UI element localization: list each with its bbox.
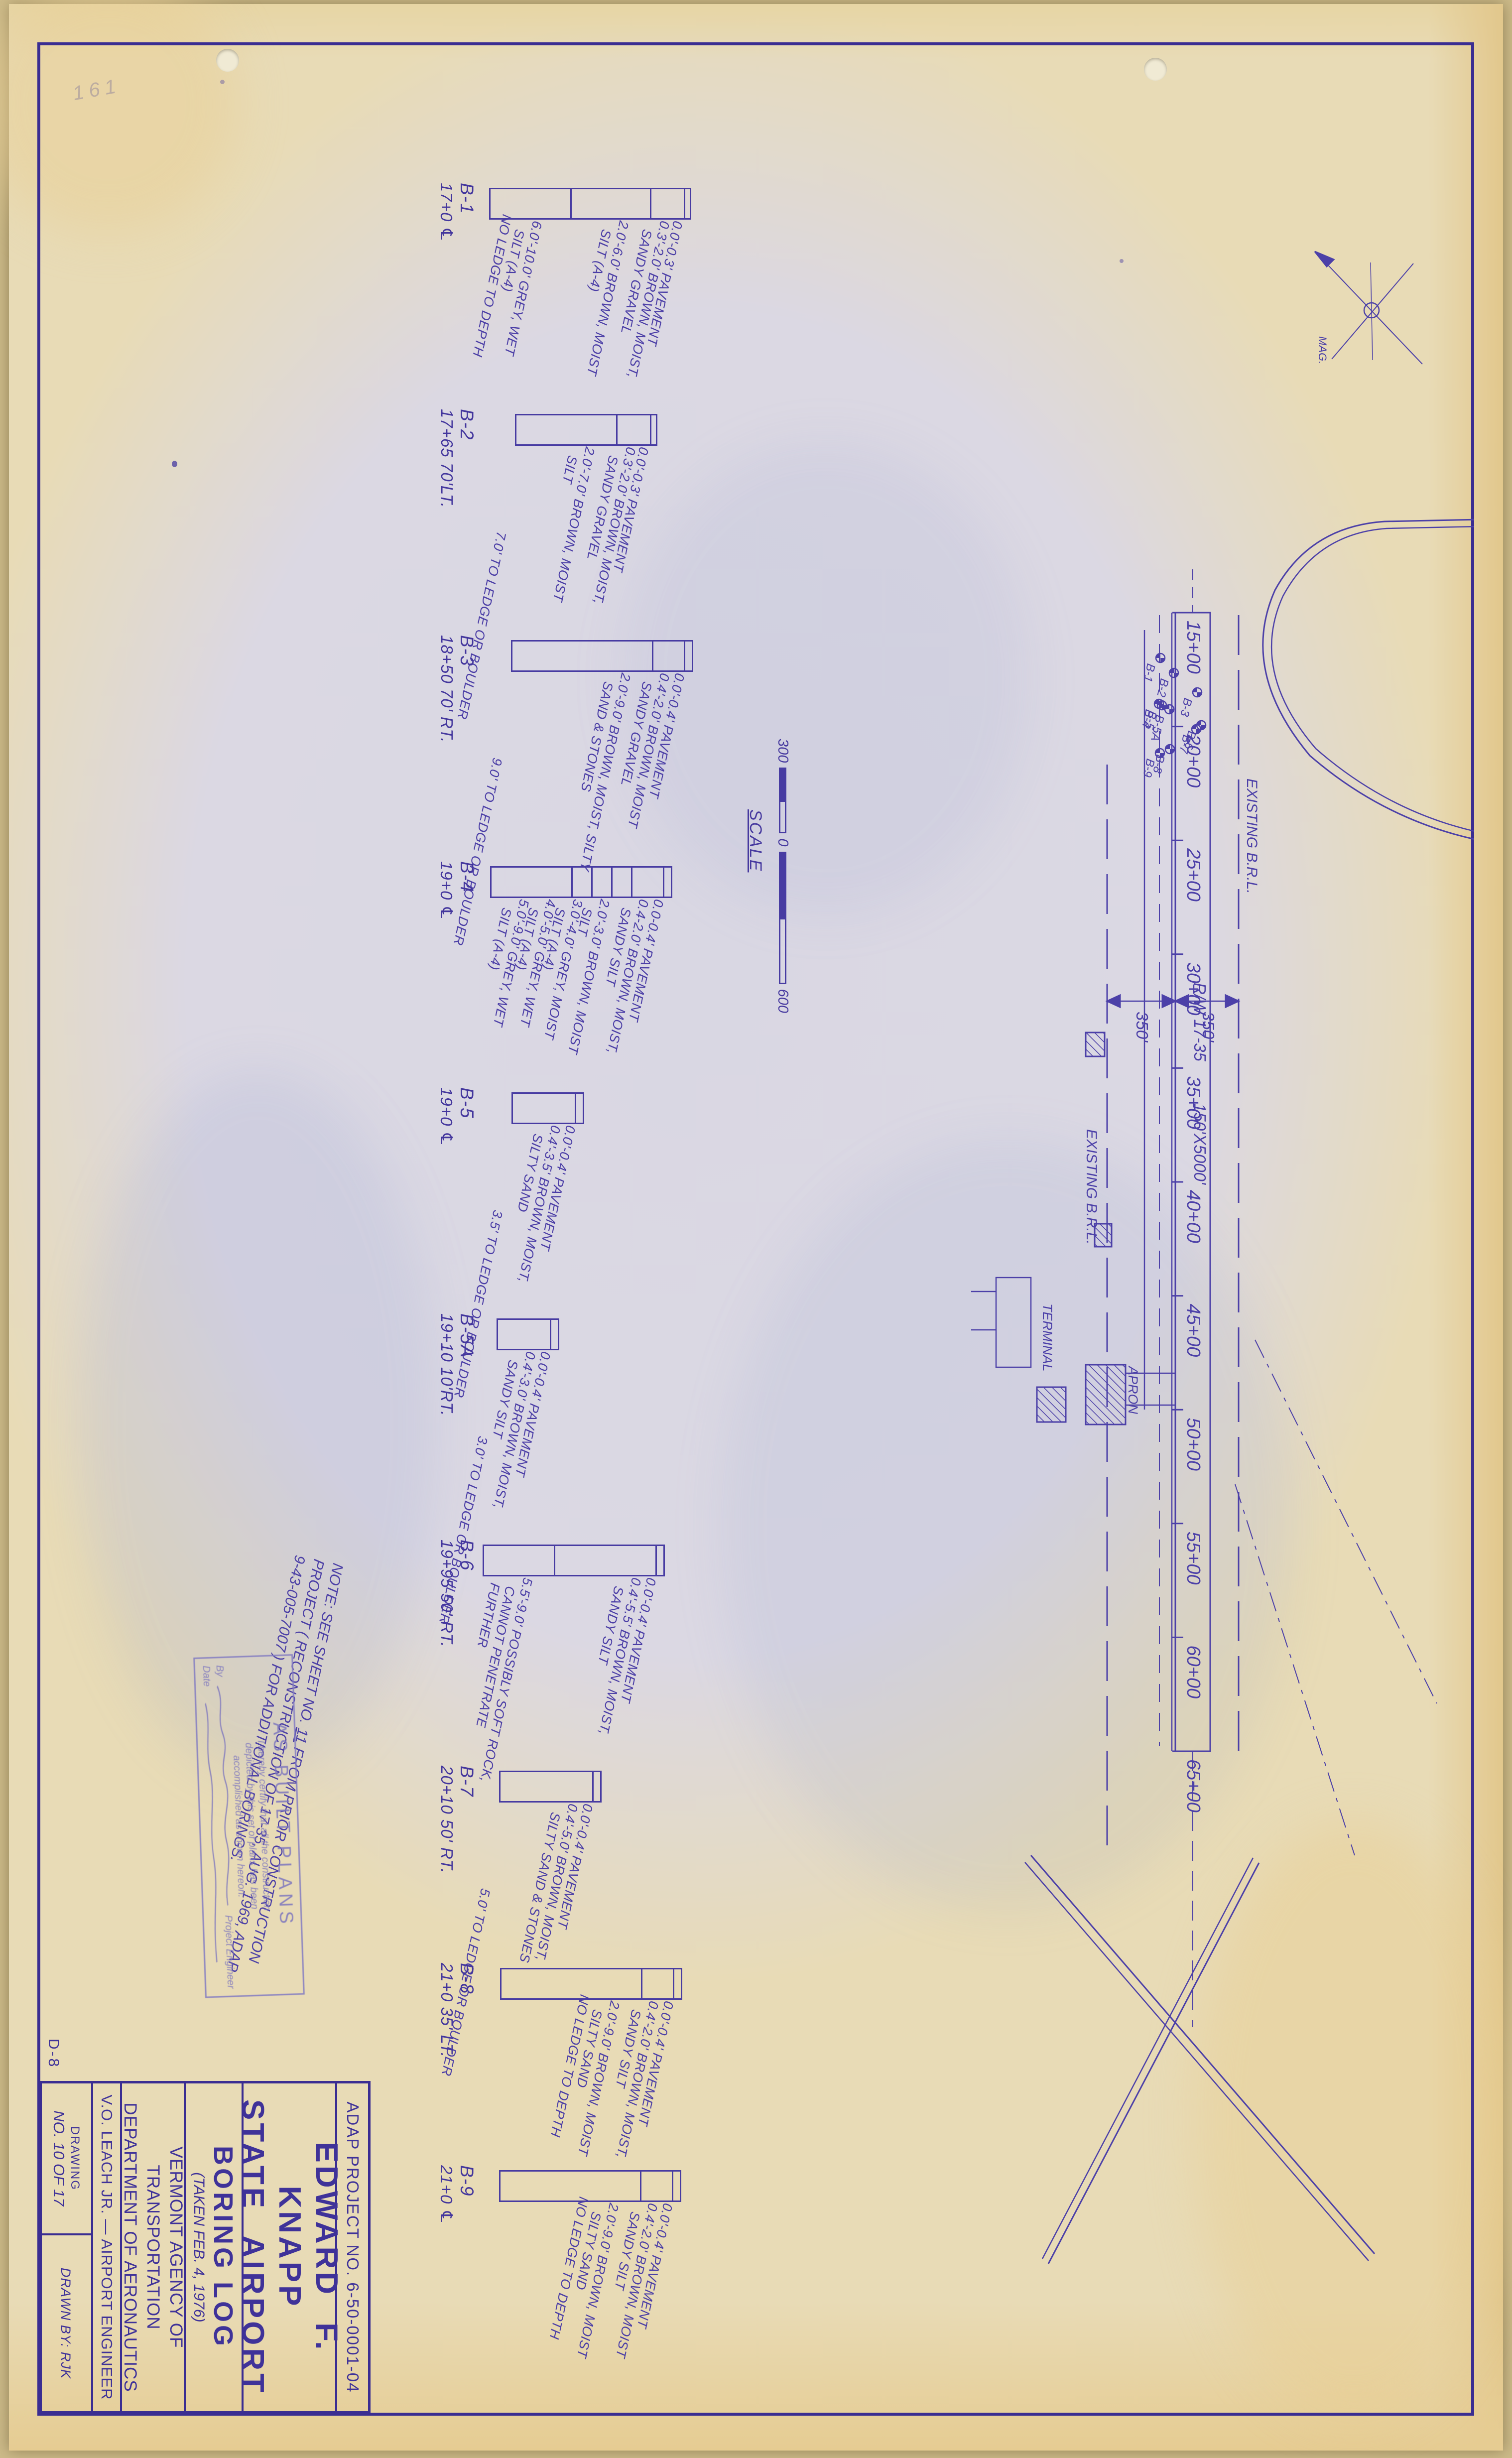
boring-marker-label: B-1: [1140, 662, 1157, 683]
scale-label: SCALE: [746, 809, 765, 873]
north-arrow-label: MAG.: [1316, 336, 1329, 364]
corner-mark: D-8: [45, 2039, 62, 2069]
airport-name-line1: EDWARD F. KNAPP: [271, 2083, 345, 2411]
scanned-blueprint-page: { "sheet_meta": { "margin_note": "161", …: [0, 0, 1512, 2458]
boring-name: B-5: [456, 1087, 477, 1147]
boring-name: B-5A: [456, 1313, 477, 1416]
station-label: 55+00: [1183, 1532, 1204, 1585]
station-label: 30+00: [1183, 962, 1204, 1016]
terminal-label: TERMINAL: [1040, 1303, 1055, 1372]
boring-name: B-8: [456, 1963, 477, 2058]
station-label: 15+00: [1183, 621, 1204, 674]
boring-station: 20+10 50' RT.: [437, 1766, 456, 1874]
boring-station: 19+0 ℄: [437, 1087, 456, 1147]
hangar-building: [1086, 1033, 1105, 1056]
stratum-boundary: [616, 415, 618, 444]
clearzone-diagonal: [1235, 1484, 1355, 1855]
drawing-word: DRAWING: [68, 2126, 82, 2191]
scale-block: [779, 768, 786, 800]
ink-dot: [172, 461, 177, 467]
scale-block: [779, 800, 786, 833]
stratum-boundary: [550, 1320, 551, 1349]
parking-area: [996, 1278, 1031, 1367]
road-35-end: [1031, 1855, 1375, 2254]
boring-label: B-419+0 ℄: [437, 861, 477, 920]
title-block-agency: VERMONT AGENCY OF TRANSPORTATION DEPARTM…: [120, 2083, 184, 2411]
stratum-boundary: [650, 189, 651, 218]
title-block: ADAP PROJECT NO. 6-50-0001-04 EDWARD F. …: [39, 2081, 371, 2414]
drawing-canvas: EXISTING B.R.L. EXISTING B.R.L. 350' 350…: [37, 42, 1474, 2416]
stratum-boundary: [641, 1969, 642, 1998]
scale-block: [779, 852, 786, 918]
boring-bar-B-4: [490, 866, 672, 898]
stamp-date-label: Date: [200, 1666, 212, 1687]
road-17-end: [1263, 519, 1474, 840]
dimension-350: [1107, 995, 1239, 1007]
scale-value-600: 600: [774, 989, 791, 1013]
stratum-boundary: [631, 868, 632, 897]
boring-name: B-9: [456, 2165, 477, 2224]
airport-name-line2: STATE AIRPORT: [234, 2099, 271, 2395]
title-block-airport-name: EDWARD F. KNAPP STATE AIRPORT: [242, 2083, 335, 2411]
stratum-boundary: [650, 415, 651, 444]
road-35-end-cross: [1042, 1858, 1253, 2259]
dimension-label-350-south: 350': [1133, 1012, 1151, 1043]
boring-label: B-519+0 ℄: [437, 1087, 477, 1147]
boring-bar-B-6: [483, 1545, 665, 1576]
road-35-end: [1025, 1862, 1369, 2261]
boring-bar-B-3: [511, 640, 693, 672]
boring-name: B-4: [456, 861, 477, 920]
boring-label: B-117+0 ℄: [437, 183, 477, 242]
ink-dot: [220, 80, 225, 84]
stratum-boundary: [684, 189, 685, 218]
existing-brl-label-north: EXISTING B.R.L.: [1244, 778, 1260, 894]
terminal-building: [1037, 1387, 1066, 1422]
stratum-boundary: [570, 189, 572, 218]
north-arrow: [1315, 252, 1422, 364]
station-ticks: 15+0020+0025+0030+0035+0040+0045+0050+00…: [1172, 613, 1204, 1812]
stratum-boundary: [640, 2172, 641, 2200]
boring-bar-B-5: [511, 1092, 584, 1124]
title-block-sheet-title: BORING LOG (TAKEN FEB. 4, 1976): [184, 2083, 242, 2411]
boring-station: 18+50 70' RT.: [437, 635, 456, 743]
scale-block: [779, 918, 786, 984]
boring-bar-B-1: [489, 188, 691, 220]
drawn-by-cell: DRAWN BY: RJK: [40, 2235, 91, 2411]
stratum-boundary: [673, 1969, 674, 1998]
boring-station: 21+0 ℄: [437, 2165, 456, 2224]
scale-value-0: 0: [774, 838, 791, 846]
boring-marker-label: B-3: [1177, 697, 1194, 718]
stamp-engineer-label: Project Engineer: [222, 1915, 236, 1989]
drawing-number-cell: DRAWING NO. 10 OF 17: [40, 2083, 91, 2235]
drawing-number: NO. 10 OF 17: [50, 2110, 68, 2206]
boring-label: B-217+65 70'LT.: [437, 409, 477, 508]
stamp-by-label: By: [214, 1665, 226, 1677]
title-block-bottom-row: DRAWING NO. 10 OF 17 DRAWN BY: RJK: [40, 2083, 91, 2411]
sheet-subtitle: (TAKEN FEB. 4, 1976): [189, 2172, 208, 2322]
boring-label: B-921+0 ℄: [437, 2165, 477, 2224]
sheet-title: BORING LOG: [208, 2146, 238, 2349]
stratum-boundary: [611, 868, 613, 897]
boring-station: 19+95 50' RT.: [437, 1540, 456, 1648]
boring-marker-label: B-9: [1140, 758, 1157, 778]
site-plan: EXISTING B.R.L. EXISTING B.R.L. 350' 350…: [37, 42, 1474, 2416]
boring-name: B-1: [456, 183, 477, 242]
title-block-engineer: V.O. LEACH JR. — AIRPORT ENGINEER: [91, 2083, 120, 2411]
apron-pad: [1086, 1365, 1126, 1424]
apron-label: APRON: [1126, 1365, 1140, 1415]
road-35-end-cross: [1048, 1863, 1259, 2264]
stratum-boundary: [591, 868, 593, 897]
agency-line2: DEPARTMENT OF AERONAUTICS: [119, 2102, 141, 2392]
stratum-boundary: [655, 1546, 657, 1575]
station-label: 45+00: [1183, 1304, 1204, 1357]
agency-line1: VERMONT AGENCY OF TRANSPORTATION: [141, 2083, 187, 2411]
boring-station: 19+0 ℄: [437, 861, 456, 920]
station-label: 25+00: [1183, 848, 1204, 902]
boring-label: B-5A19+10 10'RT.: [437, 1313, 477, 1416]
road-17-end: [1271, 526, 1474, 832]
boring-station: 17+0 ℄: [437, 183, 456, 242]
stratum-boundary: [652, 642, 653, 670]
punch-hole: [1144, 58, 1167, 81]
boring-name: B-6: [456, 1540, 477, 1648]
boring-marker-B-3: B-3: [1177, 688, 1202, 718]
boring-name: B-3: [456, 635, 477, 743]
station-label: 60+00: [1183, 1645, 1204, 1698]
boring-marker-label: B-2: [1154, 677, 1171, 698]
boring-station: 19+10 10'RT.: [437, 1313, 456, 1416]
boring-label: B-619+95 50' RT.: [437, 1540, 477, 1648]
boring-bar-B-8: [500, 1968, 682, 2000]
station-label: 35+00: [1183, 1076, 1204, 1129]
stratum-boundary: [663, 868, 664, 897]
boring-bar-B-9: [499, 2170, 681, 2202]
ink-dot: [1120, 259, 1124, 263]
station-label: 50+00: [1183, 1418, 1204, 1471]
existing-brl-label-south: EXISTING B.R.L.: [1083, 1129, 1100, 1245]
stratum-boundary: [571, 868, 573, 897]
station-label: 40+00: [1183, 1190, 1204, 1243]
boring-bar-B-2: [515, 414, 657, 446]
stratum-boundary: [575, 1094, 576, 1123]
paper-sheet: 161: [9, 4, 1503, 2451]
stratum-boundary: [684, 642, 685, 670]
boring-bar-B-7: [499, 1771, 602, 1803]
boring-label: B-821+0 35' LT.: [437, 1963, 477, 2058]
as-built-stamp: AS BUILT PLANS I hereby certify that all…: [193, 1654, 305, 1998]
boring-name: B-7: [456, 1766, 477, 1874]
scale-value-300: 300: [774, 739, 791, 763]
boring-label: B-720+10 50' RT.: [437, 1766, 477, 1874]
clearzone-diagonal: [1255, 1340, 1437, 1703]
station-label: 65+00: [1183, 1759, 1204, 1812]
stratum-boundary: [554, 1546, 555, 1575]
punch-hole: [216, 49, 239, 72]
boring-name: B-2: [456, 409, 477, 508]
boring-station: 17+65 70'LT.: [437, 409, 456, 508]
stratum-boundary: [672, 2172, 673, 2200]
boring-station: 21+0 35' LT.: [437, 1963, 456, 2058]
boring-label: B-318+50 70' RT.: [437, 635, 477, 743]
graphic-scale: 300 0 600: [774, 739, 791, 1013]
stratum-boundary: [592, 1772, 594, 1801]
